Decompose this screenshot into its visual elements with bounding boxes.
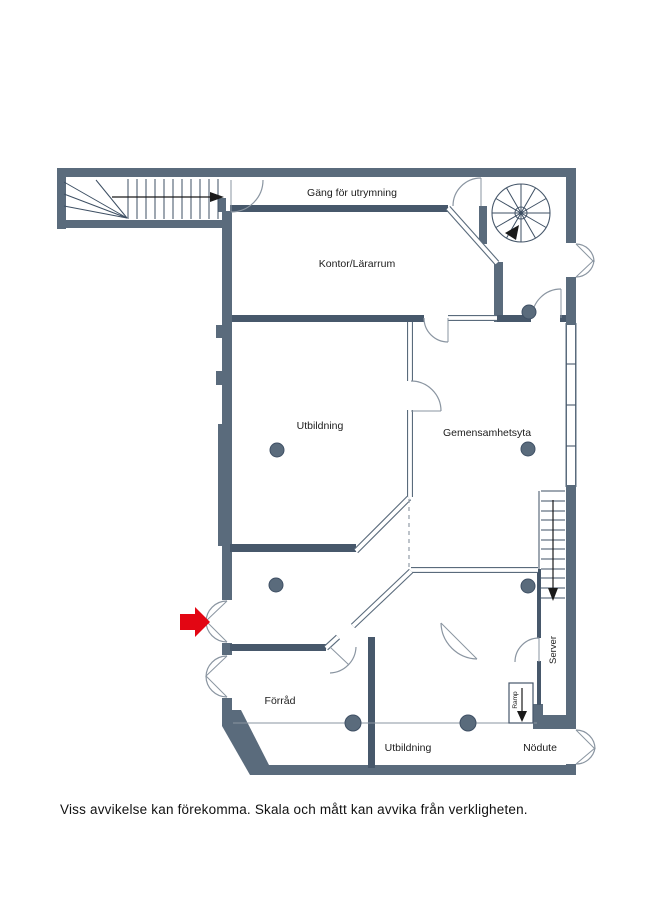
glass-wall [326, 637, 338, 648]
door-arc [411, 381, 441, 411]
door-arc [453, 178, 481, 206]
columns [269, 305, 536, 731]
staircase-right [539, 491, 565, 601]
exterior-walls [57, 168, 576, 775]
door-arc [330, 647, 356, 673]
disclaimer-text: Viss avvikelse kan förekomma. Skala och … [60, 802, 620, 817]
window [566, 323, 576, 487]
door-arc [441, 623, 477, 659]
door-arc [515, 638, 539, 662]
room-label-server: Server [548, 636, 559, 664]
room-label-training-bottom: Utbildning [385, 742, 432, 754]
room-label-office: Kontor/Lärarrum [319, 258, 396, 270]
room-label-storage: Förråd [265, 695, 296, 707]
door-arc [532, 289, 561, 318]
doors [206, 178, 595, 764]
room-label-common-area: Gemensamhetsyta [443, 427, 531, 439]
stair-down-arrow-icon [548, 500, 558, 601]
stair-direction-arrow-icon [112, 192, 224, 202]
room-label-emergency-exit: Nödute [523, 742, 557, 754]
entrance-arrow-icon [180, 607, 210, 637]
glass-wall [353, 571, 411, 626]
spiral-staircase [492, 184, 550, 242]
door-arc [424, 318, 448, 342]
double-door-emergency-exit [576, 730, 595, 764]
staircase-top-left [64, 179, 224, 219]
ramp-label: Ramp [512, 691, 519, 709]
double-door-right-top [576, 244, 594, 277]
glass-wall [448, 208, 497, 263]
double-door-storage [206, 656, 227, 697]
room-label-training-mid: Utbildning [297, 420, 344, 432]
ramp: Ramp [509, 683, 533, 723]
floor-plan: Ramp Gäng för utrymning Kontor/Lärarrum … [0, 0, 654, 915]
room-label-corridor: Gäng för utrymning [307, 187, 397, 199]
floor-plan-page: Ramp Gäng för utrymning Kontor/Lärarrum … [0, 0, 654, 915]
glass-wall [356, 498, 409, 551]
